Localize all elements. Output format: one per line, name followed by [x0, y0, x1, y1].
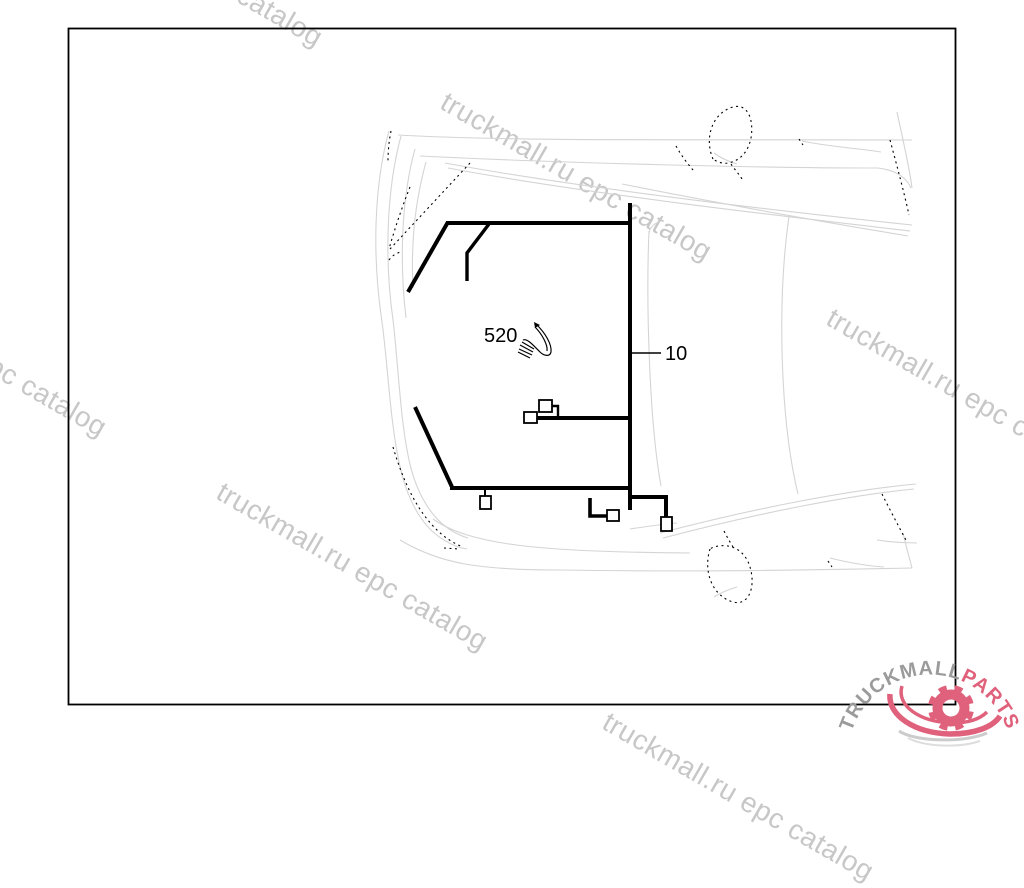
- harness-branch-stub: [467, 224, 489, 281]
- harness-r-branch: [630, 497, 666, 518]
- rear-window-dash: [389, 187, 410, 249]
- connector: [480, 496, 491, 509]
- connector: [539, 400, 552, 412]
- rear-window-dash: [389, 252, 401, 260]
- car-roof-edge: [649, 221, 661, 233]
- car-front-corner: [877, 540, 917, 543]
- headlight-top: [802, 141, 881, 152]
- car-outline-dashed: [388, 106, 909, 602]
- wire-harness-clip-icon: [518, 322, 551, 358]
- car-hood-sweep: [622, 184, 908, 236]
- car-outline: [376, 112, 917, 597]
- connector: [661, 517, 672, 531]
- car-bottom-body-line: [433, 519, 690, 553]
- part-label-520[interactable]: 520: [484, 325, 517, 347]
- harness-l-branch: [590, 498, 607, 516]
- connector: [607, 510, 619, 521]
- epc-catalog-page: { "diagram": { "description": "Top view …: [0, 0, 1024, 750]
- connector: [524, 412, 537, 423]
- wheel-arch-dash: [393, 447, 463, 547]
- headlight-bottom: [830, 558, 884, 567]
- car-bottom-body-line: [400, 540, 912, 571]
- frame-border: [69, 29, 956, 705]
- parts-diagram-canvas: 520 10 TRUCKMALLPARTS: [0, 0, 1024, 750]
- brand-logo: TRUCKMALLPARTS: [836, 657, 1024, 745]
- car-left-arc: [388, 136, 468, 538]
- mirror-bottom-trail: [724, 531, 733, 547]
- wiring-harness: [408, 203, 666, 518]
- a-pillar-dash-bottom: [882, 494, 907, 542]
- a-pillar-dash-top: [890, 140, 909, 215]
- car-hood-sweep: [663, 489, 914, 538]
- door-dash: [676, 146, 693, 170]
- headlight-tick: [828, 561, 832, 567]
- car-front-corner: [903, 533, 912, 568]
- car-top-body-line: [398, 135, 912, 140]
- mirror-bottom: [708, 546, 752, 603]
- rear-window-dash: [388, 131, 391, 161]
- harness-mid-link: [552, 406, 558, 417]
- part-label-10[interactable]: 10: [665, 343, 687, 365]
- car-cowl-arc: [782, 216, 798, 494]
- rear-window-dash: [390, 163, 470, 249]
- harness-bottom-diagonal: [415, 407, 452, 487]
- car-hood-sweep: [445, 163, 912, 225]
- mirror-arm: [714, 153, 737, 164]
- car-front-corner: [897, 112, 912, 188]
- wheel-arch-dash: [444, 548, 459, 549]
- car-roof-edge: [648, 231, 661, 486]
